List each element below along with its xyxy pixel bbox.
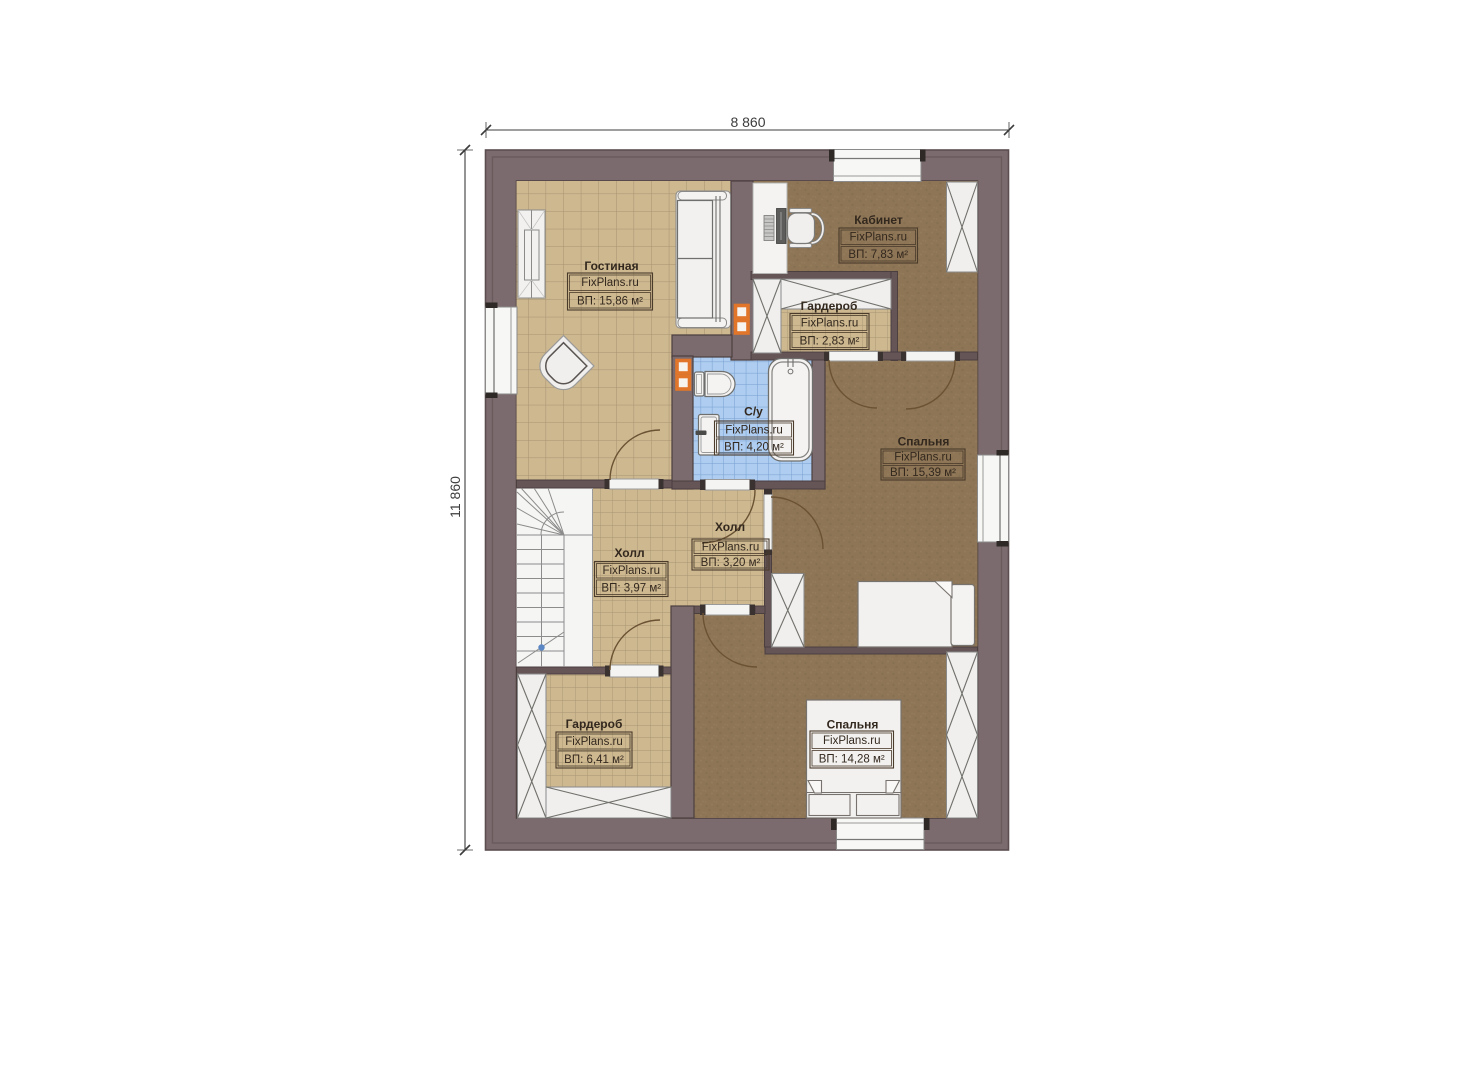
svg-text:11 860: 11 860 xyxy=(447,476,463,518)
svg-text:Гардероб: Гардероб xyxy=(566,717,623,731)
svg-text:FixPlans.ru: FixPlans.ru xyxy=(565,736,623,748)
svg-text:ВП: 3,20 м²: ВП: 3,20 м² xyxy=(701,557,761,569)
svg-text:Гостиная: Гостиная xyxy=(584,259,638,273)
svg-text:Холл: Холл xyxy=(715,520,745,534)
svg-text:ВП: 4,20 м²: ВП: 4,20 м² xyxy=(724,441,784,453)
svg-text:ВП: 15,39 м²: ВП: 15,39 м² xyxy=(890,467,956,479)
svg-text:ВП: 15,86 м²: ВП: 15,86 м² xyxy=(577,296,643,308)
svg-text:ВП: 6,41 м²: ВП: 6,41 м² xyxy=(564,754,624,766)
svg-text:FixPlans.ru: FixPlans.ru xyxy=(823,735,881,747)
svg-text:Холл: Холл xyxy=(614,546,644,560)
svg-text:FixPlans.ru: FixPlans.ru xyxy=(849,232,907,244)
svg-text:FixPlans.ru: FixPlans.ru xyxy=(702,542,760,554)
svg-text:С/у: С/у xyxy=(744,405,763,419)
svg-text:Кабинет: Кабинет xyxy=(854,213,903,227)
svg-text:Гардероб: Гардероб xyxy=(801,299,858,313)
svg-text:FixPlans.ru: FixPlans.ru xyxy=(894,452,952,464)
svg-text:Спальня: Спальня xyxy=(898,435,950,449)
svg-text:8 860: 8 860 xyxy=(730,114,765,130)
svg-text:ВП: 3,97 м²: ВП: 3,97 м² xyxy=(601,583,661,595)
svg-text:FixPlans.ru: FixPlans.ru xyxy=(801,317,859,329)
svg-text:ВП: 14,28 м²: ВП: 14,28 м² xyxy=(819,754,885,766)
svg-text:FixPlans.ru: FixPlans.ru xyxy=(602,565,660,577)
svg-text:ВП: 7,83 м²: ВП: 7,83 м² xyxy=(848,249,908,261)
svg-text:FixPlans.ru: FixPlans.ru xyxy=(581,277,639,289)
svg-text:FixPlans.ru: FixPlans.ru xyxy=(725,424,783,436)
svg-text:ВП: 2,83 м²: ВП: 2,83 м² xyxy=(800,335,860,347)
svg-text:Спальня: Спальня xyxy=(827,718,879,732)
